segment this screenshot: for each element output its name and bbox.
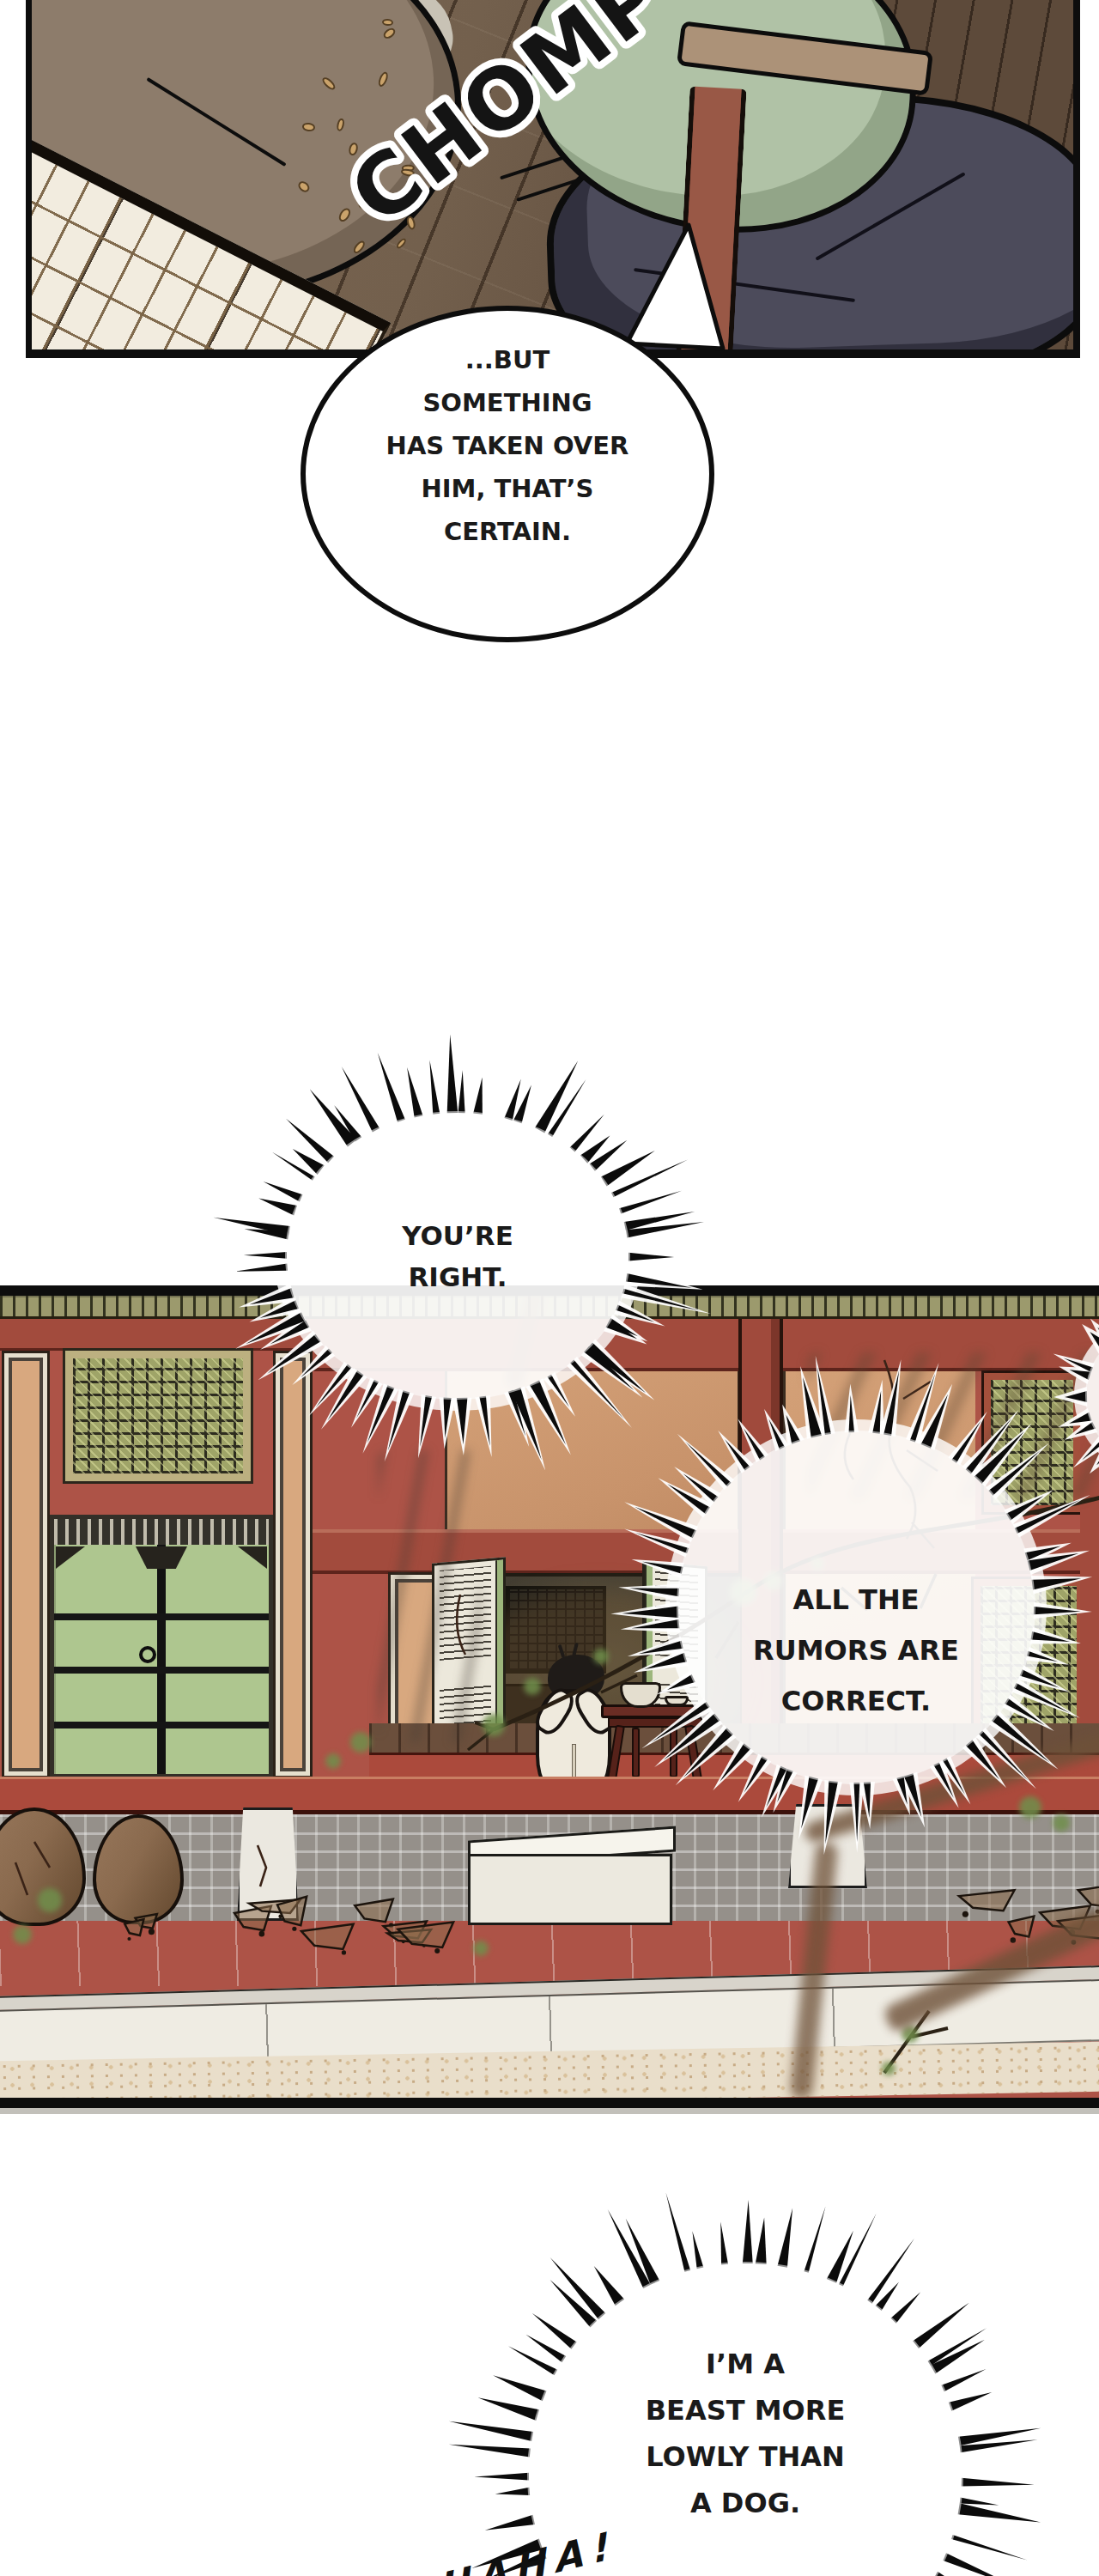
seed xyxy=(296,179,312,193)
speech-line: CORRECT. xyxy=(727,1676,985,1727)
speech-line: I’M A xyxy=(615,2341,876,2387)
debris-dot xyxy=(292,1927,296,1931)
speech-line: ...BUT xyxy=(379,338,636,381)
speech-line: RIGHT. xyxy=(329,1256,586,1297)
speech-line: RUMORS ARE xyxy=(727,1625,985,1676)
pottery-shard xyxy=(301,1924,353,1949)
speech-line: A DOG. xyxy=(615,2480,876,2526)
debris-dot xyxy=(1011,1937,1016,1942)
speech-line: SOMETHING xyxy=(379,381,636,424)
burst-bubble-edge-partial xyxy=(1051,1322,1099,1485)
comic-page: CHOMP ...BUT SOMETHING HAS TAKEN OVER HI… xyxy=(0,0,1099,2576)
speech-line: YOU’RE xyxy=(329,1215,586,1256)
speech-line: LOWLY THAN xyxy=(615,2433,876,2480)
pottery-shard xyxy=(959,1890,1015,1911)
debris-dot xyxy=(962,1911,968,1917)
speech-text-beast: I’M A BEAST MORE LOWLY THAN A DOG. xyxy=(615,2341,876,2526)
debris-dot xyxy=(342,1950,346,1954)
sfx-chomp-text: CHOMP xyxy=(332,0,683,243)
debris-dot xyxy=(127,1937,131,1941)
speech-text-youre-right: YOU’RE RIGHT. xyxy=(329,1215,586,1297)
speech-line: CERTAIN. xyxy=(379,510,636,553)
speech-line: HIM, THAT’S xyxy=(379,467,636,510)
debris-dot xyxy=(434,1948,440,1953)
pottery-shard xyxy=(1078,1883,1099,1908)
panel-eating-scene: CHOMP xyxy=(26,0,1080,358)
pottery-shard xyxy=(1009,1917,1035,1937)
speech-line: BEAST MORE xyxy=(615,2387,876,2433)
pottery-shard xyxy=(355,1899,393,1923)
debris-dot xyxy=(259,1931,265,1937)
speech-line: HAS TAKEN OVER xyxy=(379,424,636,467)
speech-text-certain: ...BUT SOMETHING HAS TAKEN OVER HIM, THA… xyxy=(379,338,636,553)
broken-pottery-debris xyxy=(124,1883,1099,1955)
seed xyxy=(301,122,315,131)
pottery-shard xyxy=(124,1919,143,1935)
speech-line: ALL THE xyxy=(727,1575,985,1625)
speech-text-rumors: ALL THE RUMORS ARE CORRECT. xyxy=(727,1575,985,1727)
debris-dot xyxy=(149,1929,155,1935)
